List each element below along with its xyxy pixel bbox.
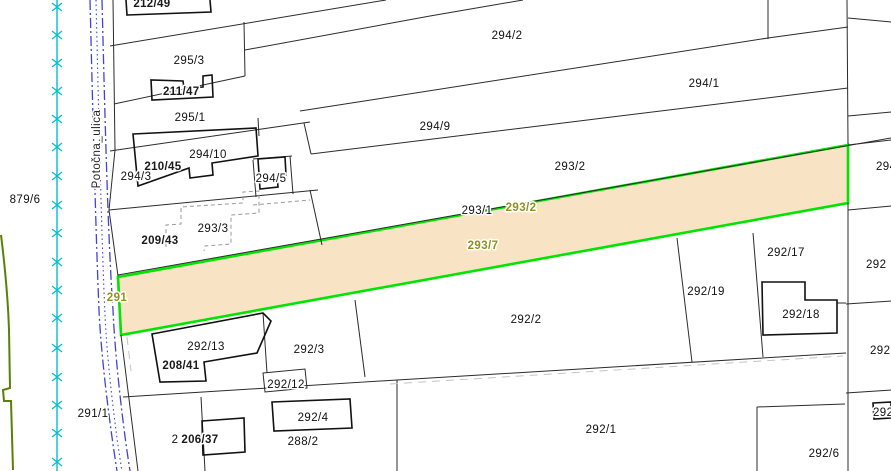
building-label-208: 208/: [162, 360, 186, 372]
parcel-label-292-12: 292/12: [267, 379, 305, 391]
parcel-label-294-2: 294/2: [492, 30, 523, 42]
parcel-label-293-2: 293/2: [555, 161, 586, 173]
parcel-label-879-6: 879/6: [10, 194, 41, 206]
selected-label-293-2: 293/2: [506, 202, 537, 214]
building-label-208-red: 41: [186, 360, 200, 372]
parcel-label-294-clipped: 294: [876, 161, 891, 173]
building-label-206: 206/: [181, 434, 205, 446]
parcel-label-292-2: 292/2: [511, 314, 542, 326]
building-label-209: 209/: [141, 235, 165, 247]
cadastral-map[interactable]: Potočna_ulica 879/6 295/3 295/1 294/3 29…: [0, 0, 891, 471]
parcel-label-292-13: 292/13: [187, 341, 225, 353]
parcel-label-288-2: 288/2: [288, 436, 319, 448]
street-name-label: Potočna_ulica: [91, 110, 103, 189]
parcel-label-292-17: 292/17: [767, 247, 805, 259]
building-label-211-red: 47: [186, 86, 199, 98]
building-label-210-red: 45: [168, 161, 182, 173]
parcel-label-291-1: 291/1: [78, 408, 109, 420]
parcel-label-292-19: 292/19: [687, 286, 725, 298]
building-label-210: 210/: [144, 161, 168, 173]
parcel-label-294-9: 294/9: [420, 121, 451, 133]
parcel-label-293-1: 293/1: [462, 205, 493, 217]
parcel-label-294-10: 294/10: [189, 149, 227, 161]
parcel-label-294-5: 294/5: [256, 173, 287, 185]
parcel-label-292-1: 292/1: [586, 424, 617, 436]
parcel-label-stray-2: 2: [172, 434, 179, 446]
parcel-label-295-1: 295/1: [175, 112, 206, 124]
parcel-label-292-6: 292/6: [809, 448, 840, 460]
building-label-212: 212/: [133, 0, 157, 10]
parcel-label-292-18: 292/18: [782, 309, 820, 321]
parcel-label-292-clipped-3: 292: [873, 407, 891, 419]
parcel-label-293-3: 293/3: [198, 223, 229, 235]
parcel-label-292-3: 292/3: [294, 344, 325, 356]
building-label-211: 211/: [163, 86, 186, 98]
selected-label-293-7: 293/7: [468, 240, 499, 252]
parcel-label-295-3: 295/3: [174, 55, 205, 67]
building-label-206-red: 37: [205, 434, 218, 446]
building-label-212-red: 49: [157, 0, 170, 10]
parcel-label-292-clipped-1: 292: [866, 259, 886, 271]
parcel-label-292-clipped-2: 292: [870, 345, 890, 357]
parcel-label-292-4: 292/4: [298, 412, 329, 424]
selected-label-291: 291: [107, 292, 128, 304]
building-label-209-red: 43: [165, 235, 178, 247]
parcel-label-294-1: 294/1: [689, 78, 720, 90]
